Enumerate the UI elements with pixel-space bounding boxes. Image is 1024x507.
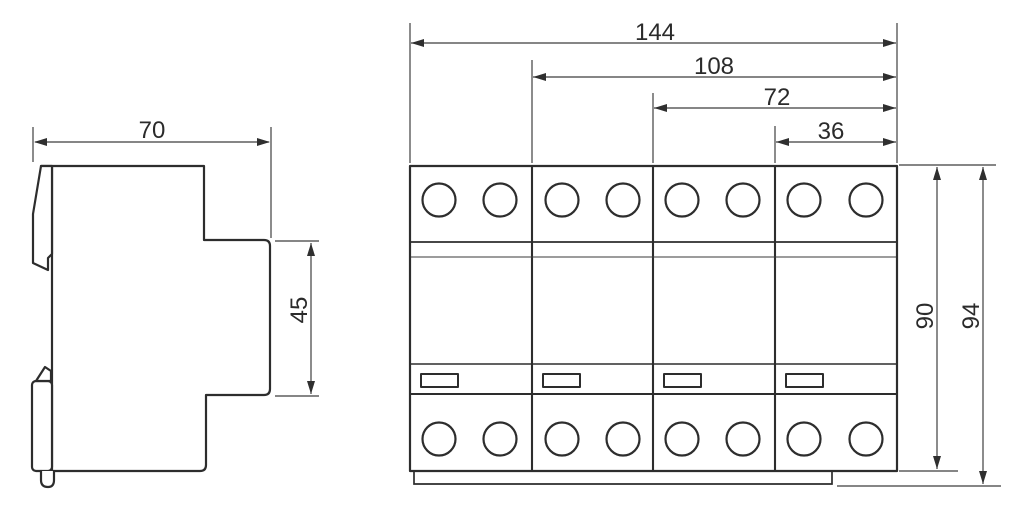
din-clip-latch (36, 367, 51, 381)
din-clip-slider (32, 381, 52, 471)
label-window (786, 374, 823, 387)
terminal-screw (850, 184, 883, 217)
dim-label-body-height: 90 (912, 303, 939, 330)
dim-label-two-modules: 72 (764, 84, 791, 111)
din-clip-upper-flange (33, 166, 52, 270)
arrowhead-left-icon (411, 39, 424, 47)
terminal-screw (788, 184, 821, 217)
dim-label-overall-width: 144 (635, 19, 675, 46)
mounting-rail-strip (414, 471, 832, 484)
arrowhead-left-icon (654, 104, 667, 112)
dim-front-one-module: 36 (775, 118, 896, 163)
arrowhead-right-icon (883, 39, 896, 47)
terminal-screw (423, 423, 456, 456)
side-body-outline (41, 166, 270, 471)
dim-side-step-height: 45 (275, 241, 319, 396)
arrowhead-right-icon (883, 138, 896, 146)
din-clip-release-tab (41, 471, 54, 487)
arrowhead-up-icon (307, 243, 315, 256)
front-view: 144 108 72 (410, 19, 1001, 486)
label-window (664, 374, 701, 387)
arrowhead-left-icon (34, 138, 47, 146)
side-view: 70 45 (32, 117, 319, 487)
arrowhead-left-icon (533, 73, 546, 81)
terminal-screw (788, 423, 821, 456)
terminal-screw (727, 184, 760, 217)
terminal-screw (484, 184, 517, 217)
arrowhead-up-icon (979, 167, 987, 180)
terminal-screw (546, 423, 579, 456)
arrowhead-down-icon (933, 456, 941, 469)
arrowhead-right-icon (257, 138, 270, 146)
label-window (543, 374, 580, 387)
terminal-screw (666, 423, 699, 456)
terminal-screw (607, 423, 640, 456)
arrowhead-left-icon (776, 138, 789, 146)
terminal-screw (727, 423, 760, 456)
technical-drawing-canvas: 70 45 (0, 0, 1024, 507)
dim-label-one-module: 36 (818, 118, 845, 145)
terminal-screw (484, 423, 517, 456)
terminal-screw (546, 184, 579, 217)
terminal-screw (666, 184, 699, 217)
arrowhead-right-icon (883, 73, 896, 81)
terminal-screw (423, 184, 456, 217)
dim-label-overall-height: 94 (958, 303, 985, 330)
arrowhead-down-icon (307, 381, 315, 394)
label-window (421, 374, 458, 387)
drawing-page: 70 45 (0, 0, 1024, 507)
dim-label-side-width: 70 (139, 117, 166, 144)
terminal-screw (850, 423, 883, 456)
dim-label-three-modules: 108 (694, 53, 734, 80)
arrowhead-up-icon (933, 167, 941, 180)
arrowhead-down-icon (979, 471, 987, 484)
arrowhead-right-icon (883, 104, 896, 112)
dim-label-side-step-height: 45 (286, 297, 313, 324)
terminal-screw (607, 184, 640, 217)
dim-front-body-height: 90 (899, 167, 958, 471)
